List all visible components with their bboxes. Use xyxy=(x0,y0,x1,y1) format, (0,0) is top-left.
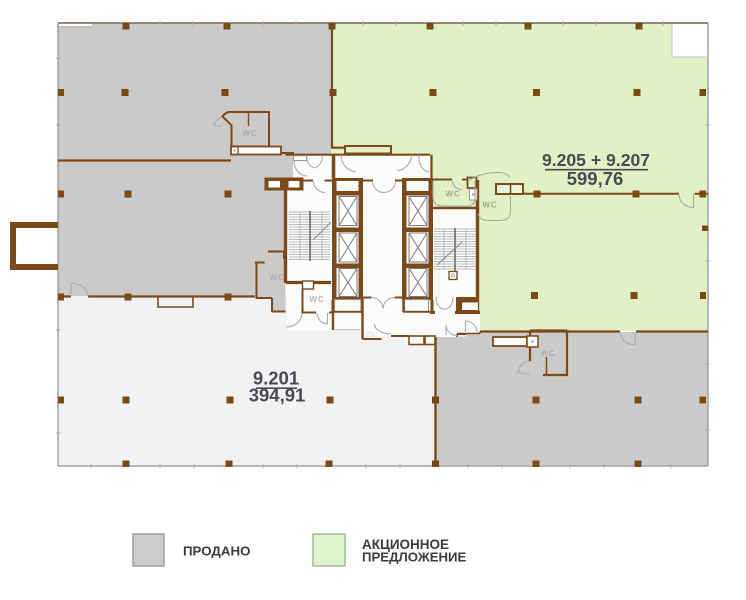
svg-text:ПРОДАНО: ПРОДАНО xyxy=(183,544,250,559)
svg-text:WC: WC xyxy=(270,273,285,282)
svg-text:ПРЕДЛОЖЕНИЕ: ПРЕДЛОЖЕНИЕ xyxy=(362,550,467,565)
svg-text:394,91: 394,91 xyxy=(249,385,306,406)
svg-text:WC: WC xyxy=(446,190,461,199)
svg-text:WC: WC xyxy=(243,129,258,138)
svg-text:WC: WC xyxy=(310,295,325,304)
svg-text:WC: WC xyxy=(483,201,498,210)
svg-text:9.205 + 9.207: 9.205 + 9.207 xyxy=(542,150,650,170)
svg-text:599,76: 599,76 xyxy=(567,168,624,189)
svg-text:WC: WC xyxy=(541,349,556,358)
